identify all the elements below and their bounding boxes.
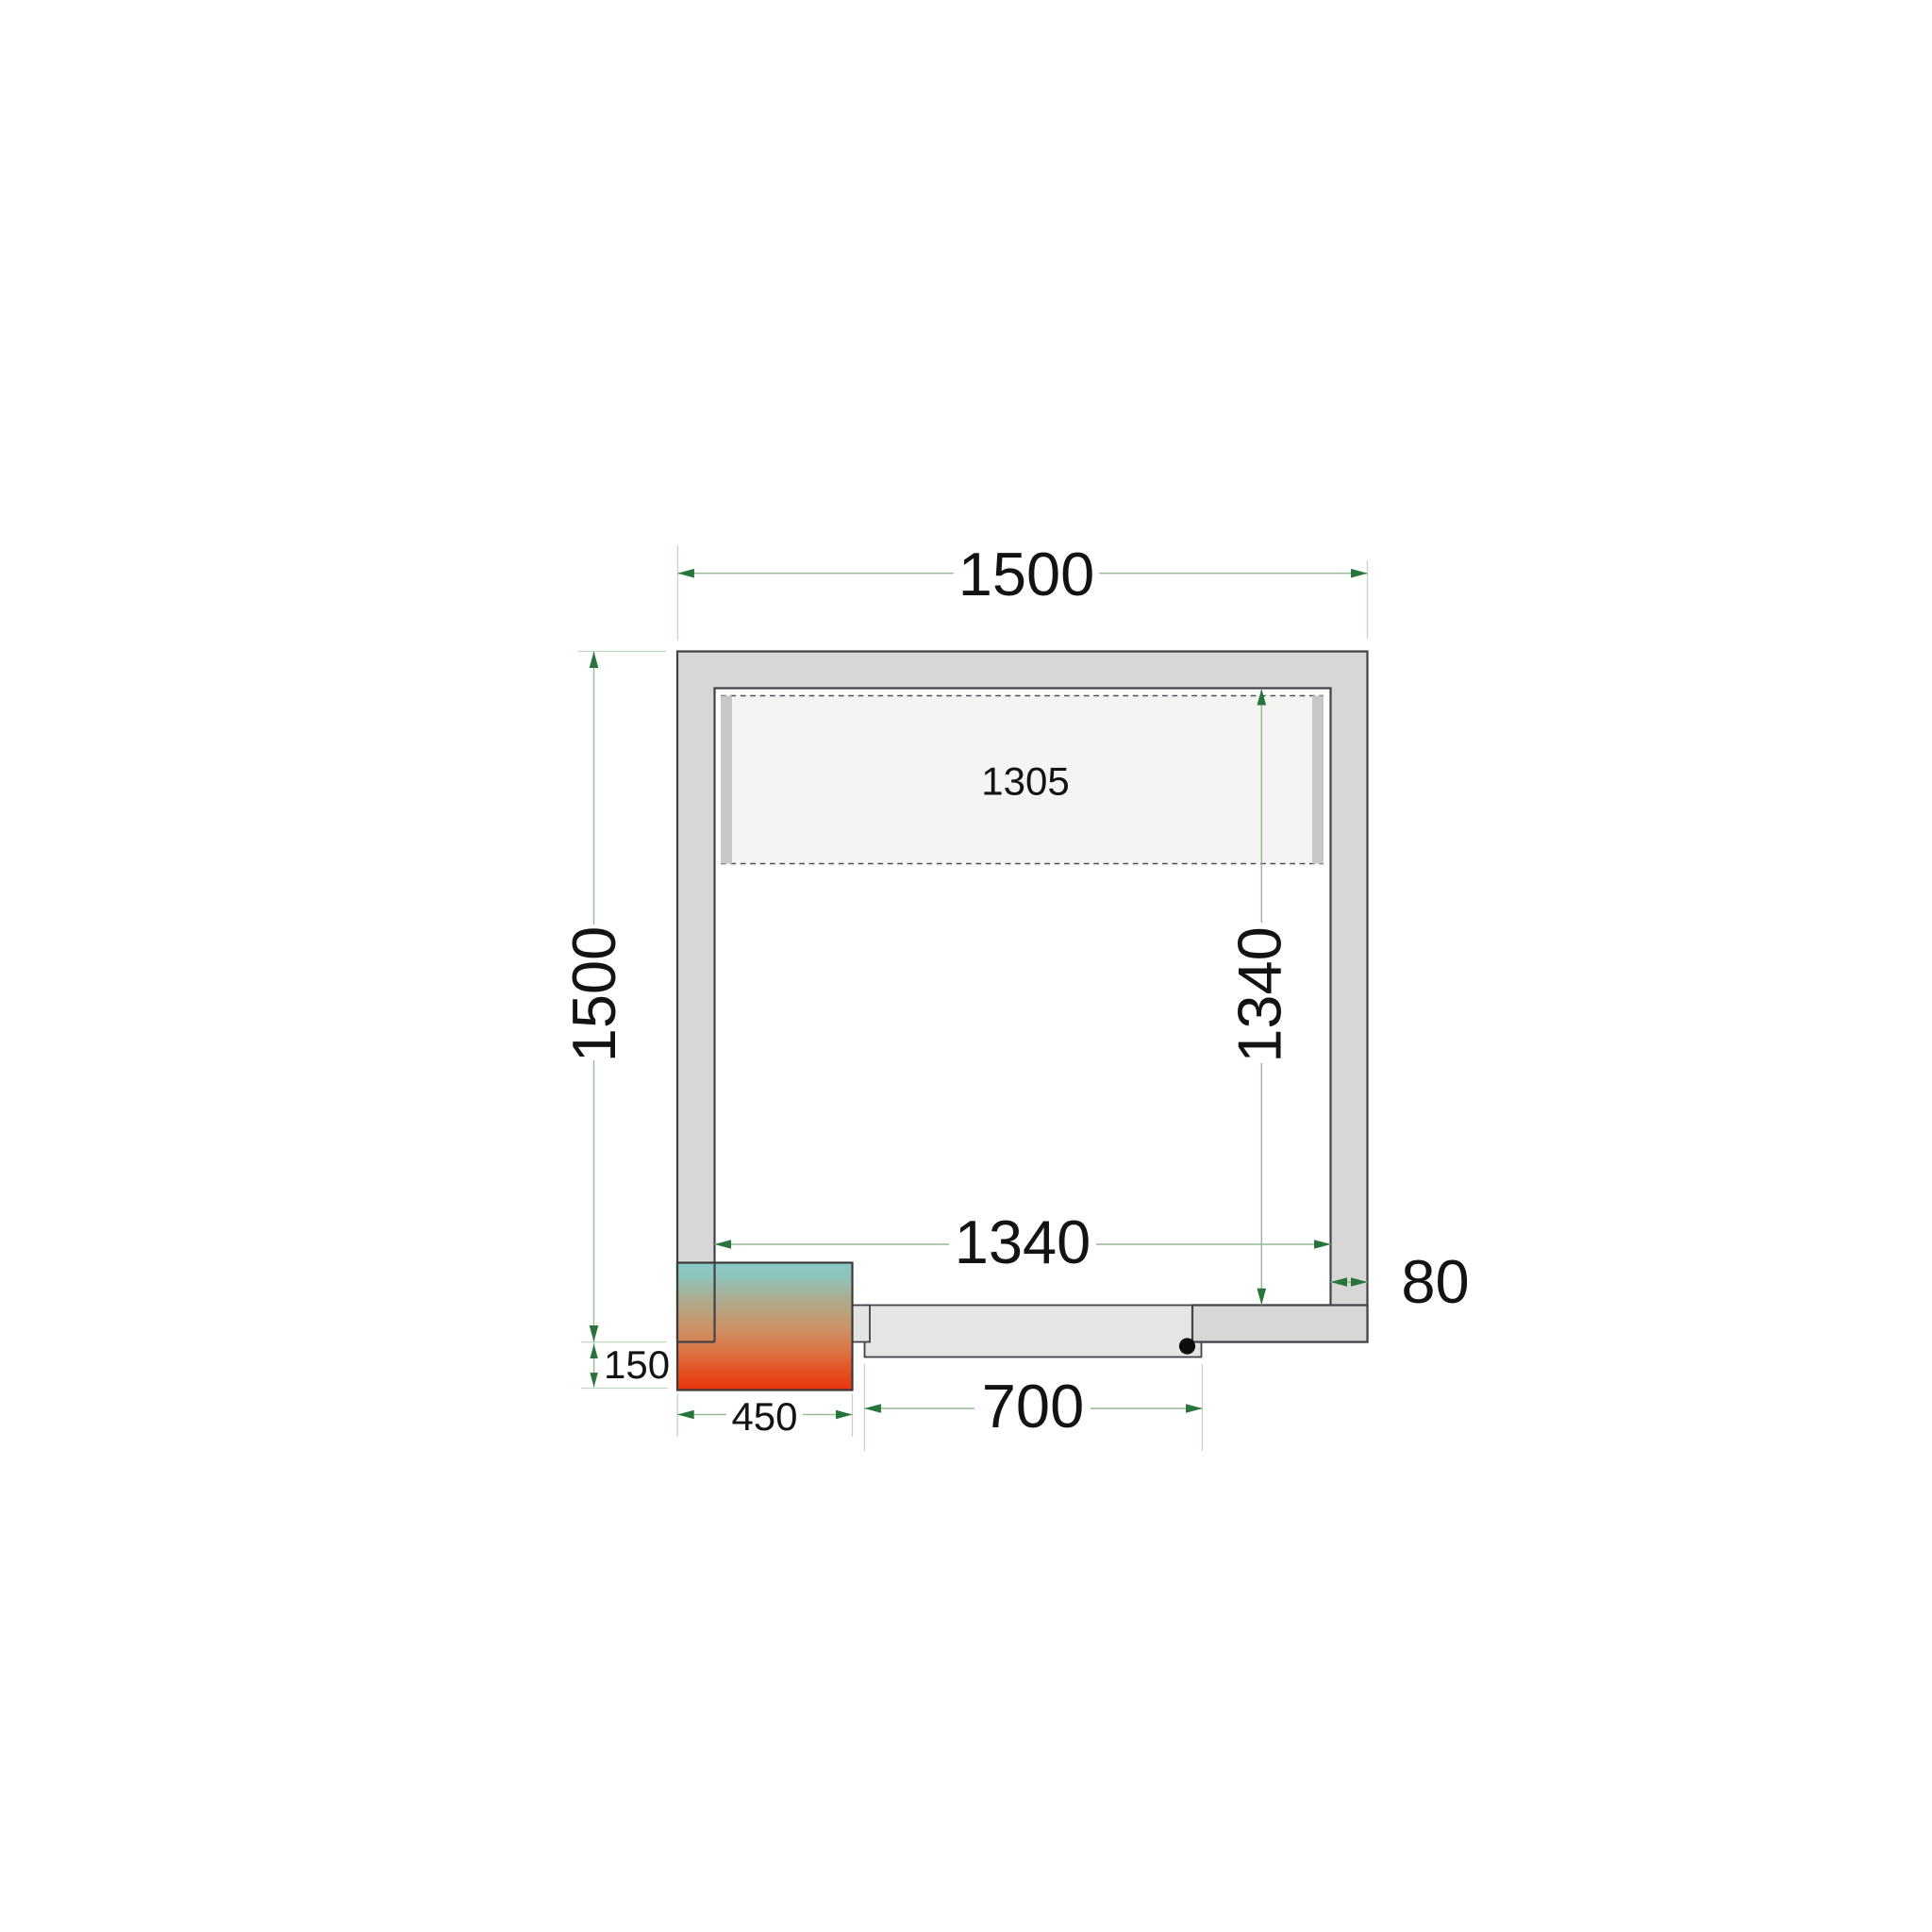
svg-text:1305: 1305 (981, 759, 1069, 804)
svg-text:80: 80 (1401, 1247, 1469, 1316)
svg-text:1340: 1340 (1224, 926, 1293, 1063)
svg-text:150: 150 (604, 1342, 670, 1387)
svg-text:1340: 1340 (955, 1207, 1091, 1276)
svg-text:700: 700 (982, 1372, 1084, 1441)
svg-text:450: 450 (731, 1394, 797, 1439)
svg-text:1500: 1500 (559, 926, 628, 1063)
svg-text:1500: 1500 (958, 540, 1095, 608)
